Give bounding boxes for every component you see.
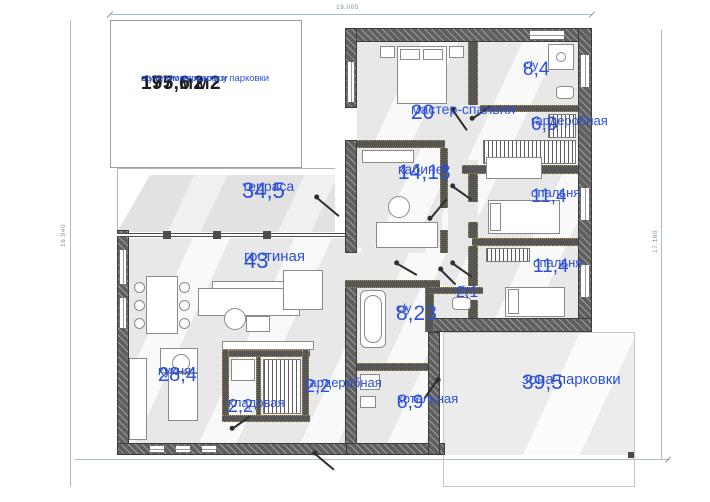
wall-bath-block-left	[345, 283, 357, 455]
glass-mullion	[263, 231, 271, 239]
dimension-line-top	[110, 14, 592, 15]
wall-study-right-b	[440, 230, 448, 253]
bathtub-inner	[364, 295, 382, 343]
parking-corner-dot	[628, 452, 634, 458]
wall-study-left	[345, 140, 357, 253]
wall-wing-bottom	[430, 318, 592, 332]
dimension-tick	[589, 11, 595, 17]
window	[150, 445, 164, 453]
shelf	[231, 359, 255, 381]
chair	[179, 300, 190, 311]
equipment	[360, 396, 376, 408]
dimension-label-left: 16.940	[60, 224, 67, 247]
window	[119, 250, 127, 284]
wall-hall-c	[468, 246, 478, 286]
ottoman	[246, 316, 270, 332]
terrace-edge-top	[117, 168, 335, 169]
window	[530, 30, 564, 40]
sofa-back	[212, 281, 284, 289]
pillow	[490, 203, 501, 231]
wall-closet-top	[222, 350, 310, 357]
sofa-study	[376, 222, 438, 248]
floor-plan: 19.005 16.940 17.180 197,6 м2 с учетом т…	[0, 0, 710, 502]
nightstand	[380, 46, 395, 58]
dining-table	[146, 276, 178, 334]
chair	[134, 300, 145, 311]
window	[580, 188, 590, 220]
chair	[134, 318, 145, 329]
window	[176, 445, 190, 453]
wall-study-top	[357, 140, 445, 148]
kitchen-counter	[129, 358, 147, 440]
dimension-label-right: 17.180	[652, 230, 659, 253]
dimension-line-left	[70, 20, 71, 487]
dimension-label-top: 19.005	[336, 4, 359, 11]
glass-mullion	[213, 231, 221, 239]
wall-boiler-top	[357, 363, 428, 371]
chair	[179, 282, 190, 293]
window	[347, 62, 355, 102]
wardrobe-shelving	[486, 248, 530, 262]
pillow	[508, 289, 519, 314]
heated-area-note: по теплому контуру	[141, 73, 228, 84]
wall-hall-b	[468, 222, 478, 238]
terrace-deck	[117, 175, 335, 232]
cabinet	[486, 157, 542, 179]
area-summary-box: 197,6 м2 с учетом террасы и парковки 175…	[110, 20, 302, 168]
chair	[134, 282, 145, 293]
chair	[179, 318, 190, 329]
tv-console	[222, 341, 314, 350]
window	[580, 55, 590, 87]
glass-wall	[117, 233, 345, 237]
wall-master-bath	[468, 42, 478, 105]
wall-bedroom1-bedroom2	[472, 238, 578, 246]
coffee-table	[224, 308, 246, 330]
chair	[388, 196, 410, 218]
window	[202, 445, 216, 453]
shower-drain	[556, 52, 566, 62]
dimension-tick	[665, 456, 671, 462]
toilet	[556, 86, 574, 99]
terrace-edge-left	[117, 168, 118, 232]
window	[119, 298, 127, 328]
pillow	[400, 49, 420, 60]
pillow	[423, 49, 443, 60]
glass-mullion	[163, 231, 171, 239]
dimension-line-right	[661, 30, 662, 459]
armchair	[283, 270, 323, 310]
nightstand	[449, 46, 464, 58]
